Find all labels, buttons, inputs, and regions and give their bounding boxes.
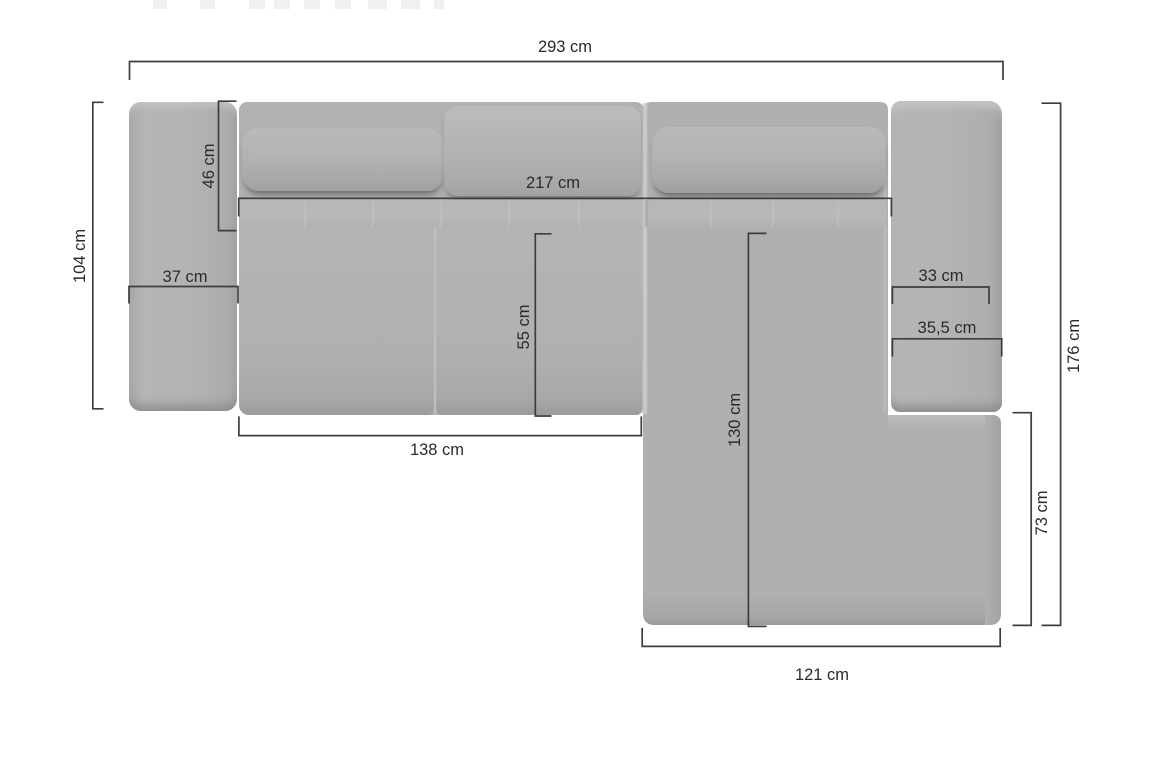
svg-text:176 cm: 176 cm [1065,319,1083,373]
svg-text:104 cm: 104 cm [71,229,89,283]
svg-text:73 cm: 73 cm [1033,491,1051,536]
svg-text:35,5 cm: 35,5 cm [918,319,977,337]
svg-text:46 cm: 46 cm [200,144,218,189]
svg-text:33 cm: 33 cm [919,267,964,285]
svg-text:217 cm: 217 cm [526,174,580,192]
svg-text:138 cm: 138 cm [410,441,464,459]
svg-text:121 cm: 121 cm [795,666,849,684]
svg-text:293 cm: 293 cm [538,38,592,56]
svg-text:55 cm: 55 cm [515,305,533,350]
svg-text:130 cm: 130 cm [726,393,744,447]
svg-text:37 cm: 37 cm [163,268,208,286]
